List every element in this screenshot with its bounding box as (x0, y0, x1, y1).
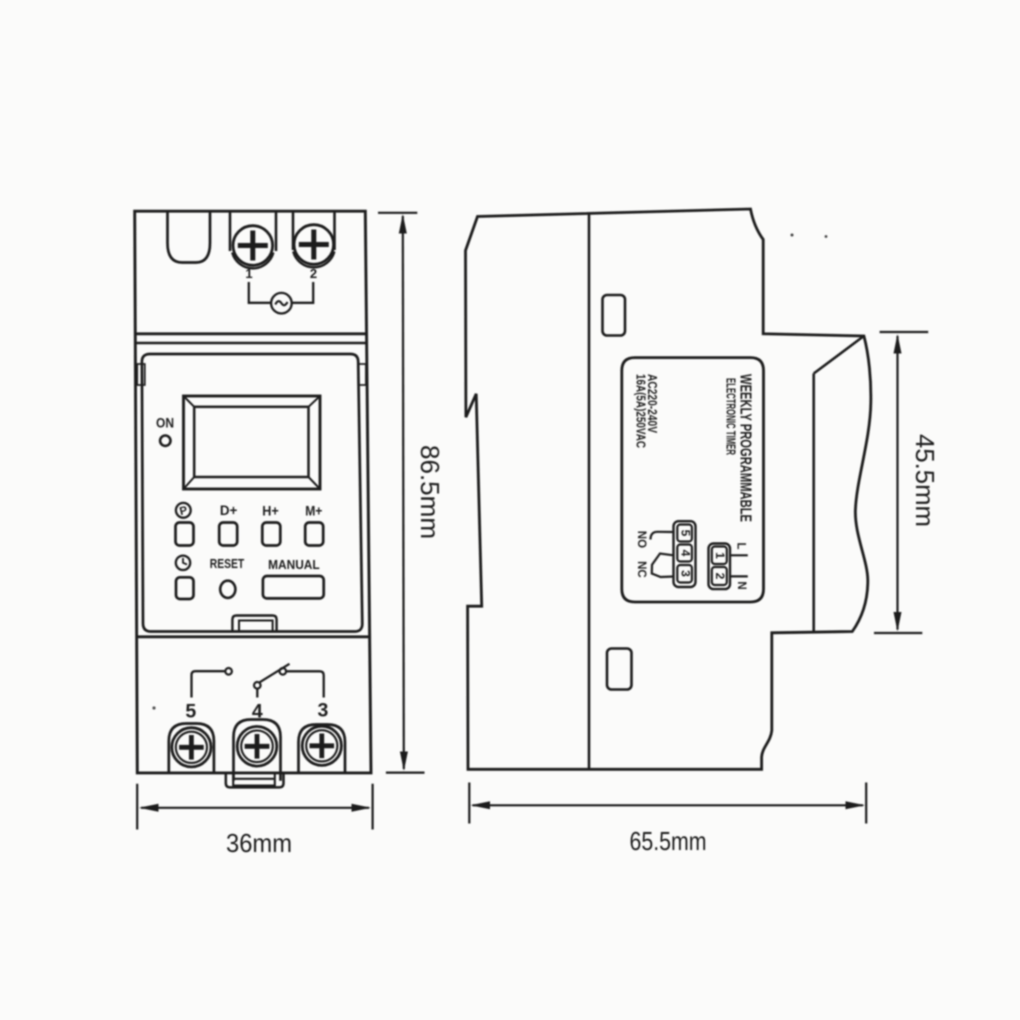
svg-text:D+: D+ (220, 503, 238, 518)
svg-text:16A(5A)250VAC: 16A(5A)250VAC (634, 374, 649, 448)
svg-text:36mm: 36mm (226, 828, 292, 858)
svg-text:4: 4 (678, 550, 692, 557)
svg-text:MANUAL: MANUAL (268, 558, 320, 572)
svg-text:ELECTRONIC TIMER: ELECTRONIC TIMER (723, 378, 738, 455)
svg-text:N: N (735, 581, 747, 589)
svg-text:3: 3 (317, 700, 328, 722)
svg-text:P: P (178, 505, 189, 519)
svg-text:86.5mm: 86.5mm (415, 445, 445, 539)
svg-text:3: 3 (678, 570, 692, 577)
svg-text:M+: M+ (305, 504, 322, 519)
svg-text:L: L (734, 542, 746, 549)
svg-text:RESET: RESET (210, 557, 245, 571)
svg-text:5: 5 (185, 700, 196, 722)
svg-text:2: 2 (310, 266, 317, 281)
svg-text:ON: ON (156, 416, 174, 431)
svg-text:H+: H+ (262, 504, 279, 519)
svg-text:1: 1 (245, 266, 252, 281)
svg-text:65.5mm: 65.5mm (630, 826, 707, 856)
svg-text:NC: NC (635, 561, 647, 578)
svg-text:1: 1 (713, 552, 727, 559)
svg-text:45.5mm: 45.5mm (910, 434, 940, 527)
svg-text:NO: NO (635, 531, 647, 548)
svg-text:5: 5 (678, 530, 692, 537)
svg-text:2: 2 (713, 573, 727, 580)
